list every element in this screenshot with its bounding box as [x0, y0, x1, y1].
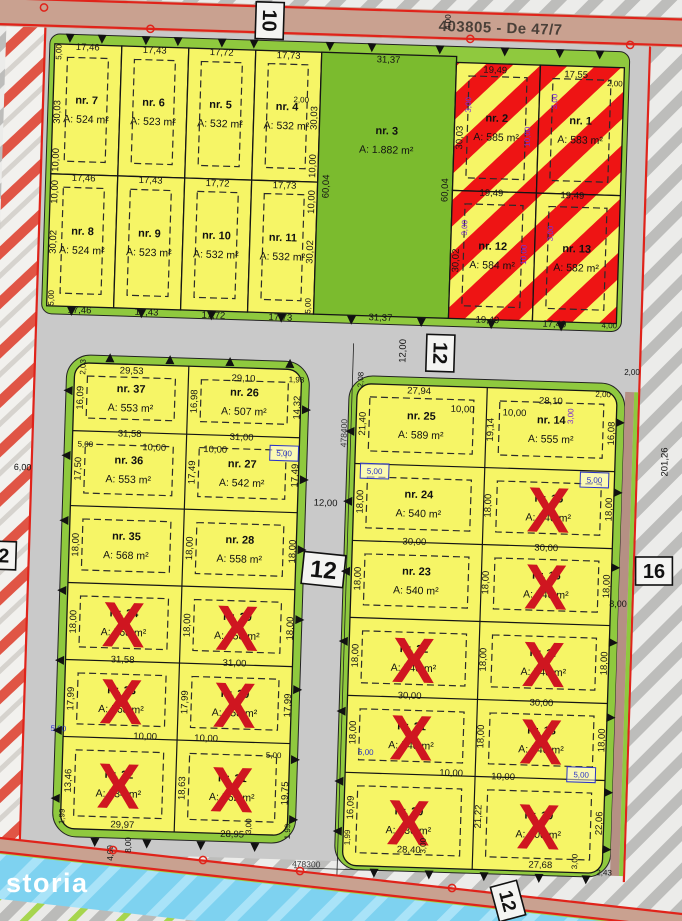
dim-label-group: 19,14	[485, 418, 497, 442]
plot-area-label: A: 532 m²	[263, 119, 309, 132]
plot-area-label: A: 507 m²	[221, 405, 267, 418]
dim-label-group: 19,49	[560, 190, 584, 202]
dim-label-group: 10,00	[142, 442, 166, 454]
dim-label-group: 8,00	[124, 837, 133, 853]
dim-label-group: 2,00	[293, 95, 309, 105]
dim-label: 5,00	[367, 467, 383, 477]
dim-label-group: 2,00	[624, 368, 640, 377]
dim-label-group: 18,00	[596, 728, 608, 752]
dim-label-group: 10,00	[306, 190, 318, 214]
dim-label: 10,00	[307, 154, 319, 178]
dim-label: 30,00	[398, 690, 422, 702]
dim-label-group: 18,00	[483, 494, 495, 518]
dim-label-group: 31,00	[222, 658, 246, 670]
dim-label: 10,00	[133, 731, 157, 743]
sold-x-mark: X	[210, 753, 255, 826]
plot-area-label: A: 532 m²	[193, 248, 239, 261]
dim-label-group: 14,32	[292, 396, 304, 420]
plot-number-label: nr. 9	[138, 228, 161, 241]
dim-label: 3,00	[244, 818, 254, 834]
plot-number-label: nr. 10	[202, 230, 231, 243]
dim-label-group: 10,00	[502, 407, 526, 419]
dim-label-group: 17,46	[72, 173, 96, 185]
dim-label: 17,99	[179, 690, 191, 714]
plot-number-label: nr. 28	[225, 534, 254, 547]
dim-label-group: 18,00	[478, 648, 490, 672]
dim-label-group: 21,40	[357, 412, 369, 436]
dim-label: 17,73	[272, 180, 296, 192]
dim-label-group: 17,73	[272, 180, 296, 192]
dim-label: 30,00	[402, 536, 426, 548]
sold-x-mark: X	[521, 628, 566, 701]
dim-label-group: 2,00	[595, 390, 611, 400]
dim-label: 17,55	[564, 69, 588, 81]
dim-label: 5,00	[54, 44, 64, 60]
dim-label: 22,06	[594, 811, 606, 835]
dim-label-group: 60,04	[320, 174, 332, 198]
dim-label-group: 27,94	[407, 385, 431, 397]
plot-number-label: nr. 6	[142, 97, 165, 110]
plot-number-label: nr. 23	[402, 566, 431, 579]
dim-label: 10,00	[50, 148, 62, 172]
dim-label: 18,00	[70, 533, 82, 557]
plot-area-label: A: 524 m²	[63, 113, 109, 126]
dim-label: 17,43	[143, 45, 167, 57]
dim-label: 18,00	[475, 725, 487, 749]
dim-label-group: 10,00	[523, 126, 533, 147]
dim-label-group: 12,00	[397, 339, 409, 363]
dim-label: 30,02	[48, 230, 60, 254]
dim-label: 12,00	[314, 498, 338, 510]
dim-label-group: 18,00	[347, 720, 359, 744]
dim-label-group: 10,00	[203, 444, 227, 456]
dim-label: 478300	[292, 859, 321, 870]
dim-label: 30,03	[52, 100, 64, 124]
dim-label-group: 1,99	[57, 808, 67, 824]
plot-area-label: A: 553 m²	[108, 402, 154, 415]
dim-label: 3,00	[460, 219, 470, 235]
dim-label: 5,00	[573, 770, 589, 780]
dim-label: 19,49	[483, 65, 507, 77]
dim-label: 18,00	[596, 728, 608, 752]
dim-label-group: 18,00	[182, 613, 194, 637]
dim-label: 31,37	[376, 54, 400, 66]
dim-label: 18,00	[182, 613, 194, 637]
dim-label: 201,26	[659, 447, 670, 476]
dim-label-group: 28,10	[539, 396, 563, 408]
dim-label: 18,63	[177, 776, 189, 800]
dim-label: 18,00	[599, 651, 611, 675]
dim-label: 5,00	[303, 297, 313, 313]
dim-label-group: 5,00	[303, 297, 313, 313]
dim-label-group: 18,63	[177, 776, 189, 800]
dim-label-group: 3,00	[460, 219, 470, 235]
dim-label: 3,00	[570, 853, 580, 869]
dim-label-group: 3,00	[464, 96, 474, 112]
dim-label-group: 21,22	[473, 804, 485, 828]
dim-label: 17,46	[76, 42, 100, 54]
dim-label: 17,43	[134, 307, 158, 319]
dim-label-group: 2,03	[78, 358, 88, 374]
dim-label: 18,00	[347, 720, 359, 744]
dim-label-group: 18,00	[285, 616, 297, 640]
cadastral-plan-drawing: 403805 - De 47/7nr. 7A: 524 m²nr. 6A: 52…	[0, 0, 682, 921]
dim-label-group: 30,02	[304, 240, 316, 264]
dim-label: 31,00	[230, 432, 254, 444]
dim-label: 10,00	[203, 444, 227, 456]
dim-label: 18,00	[603, 497, 615, 521]
dim-label: 16,09	[345, 795, 357, 819]
dim-label-group: 18,00	[68, 610, 80, 634]
dim-label: 21,40	[357, 412, 369, 436]
plot-area-label: A: 555 m²	[528, 433, 574, 446]
dim-label: 28,95	[220, 829, 244, 841]
dim-label-group: 17,43	[139, 175, 163, 187]
dim-label-group: 18,00	[475, 725, 487, 749]
plot-number-label: nr. 3	[375, 125, 398, 138]
dim-label: 27,94	[407, 385, 431, 397]
dim-label-group: 5,00	[270, 445, 299, 461]
dim-label-group: 30,00	[402, 536, 426, 548]
plot-area-label: A: 523 m²	[130, 115, 176, 128]
dim-label: 18,00	[285, 616, 297, 640]
plot-area-label: A: 1.882 m²	[359, 143, 414, 157]
dim-label-group: 28,95	[220, 829, 244, 841]
plot-nr-3	[314, 52, 457, 318]
dim-label: 18,00	[355, 490, 367, 514]
dim-label-group: 29,10	[231, 373, 255, 385]
dim-label-group: 31,58	[118, 428, 142, 440]
dim-label: 5,00	[77, 440, 93, 450]
dim-label-group: 30,00	[529, 697, 553, 709]
dim-label: 17,43	[139, 175, 163, 187]
dim-label-group: 17,55	[564, 69, 588, 81]
dim-label: 478400	[338, 419, 349, 448]
dim-label-group: 10,00	[519, 244, 529, 265]
dim-label: 29,10	[231, 373, 255, 385]
dim-label: 4,00	[443, 14, 453, 30]
dim-label-group: 201,26	[659, 447, 670, 476]
dim-label-group: 3,00	[570, 853, 580, 869]
dim-label-group: 17,49	[289, 464, 301, 488]
dim-label: 2,00	[624, 368, 640, 377]
sold-x-mark: X	[212, 669, 257, 742]
dim-label: 30,02	[304, 240, 316, 264]
dim-label-group: 16,98	[189, 389, 201, 413]
dim-label: 18,00	[184, 536, 196, 560]
dim-label-group: 10,00	[49, 180, 61, 204]
dim-label: 10,00	[194, 733, 218, 745]
dim-label-group: 2,43	[596, 868, 612, 878]
dim-label-group: 16,09	[345, 795, 357, 819]
storia-watermark: storia	[6, 868, 89, 899]
dim-label-group: 12,00	[314, 498, 338, 510]
dim-label: 27,68	[528, 859, 552, 871]
dim-label-group: 10,00	[307, 154, 319, 178]
dim-label-group: 13,46	[63, 769, 75, 793]
dim-label: 10,00	[49, 180, 61, 204]
dim-label: 31,37	[368, 312, 392, 324]
dim-label-group: 18,00	[603, 497, 615, 521]
dim-label-group: 19,49	[483, 65, 507, 77]
plot-number-label: nr. 2	[485, 112, 508, 125]
dim-label-group: 19,75	[279, 781, 291, 805]
road-number-label: 16	[643, 561, 665, 583]
plot-number-label: nr. 27	[228, 458, 257, 471]
plot-number-label: nr. 26	[230, 387, 259, 400]
dim-label: 1,98	[289, 375, 305, 385]
dim-label: 10,00	[502, 407, 526, 419]
dim-label-group: 30,03	[454, 126, 466, 150]
dim-label: 5,00	[46, 289, 56, 305]
dim-label-group: 31,58	[110, 654, 134, 666]
dim-label-group: 3,00	[550, 93, 560, 109]
dim-label: 18,00	[483, 494, 495, 518]
dim-label: 18,00	[601, 574, 613, 598]
dim-label-group: 30,00	[398, 690, 422, 702]
cadastral-plan-canvas: 403805 - De 47/7nr. 7A: 524 m²nr. 6A: 52…	[0, 0, 682, 921]
dim-label: 19,14	[485, 418, 497, 442]
dim-label: 2,00	[595, 390, 611, 400]
dim-label-group: 10,00	[50, 148, 62, 172]
plot-area-label: A: 542 m²	[219, 477, 265, 490]
dim-label: 10,00	[491, 771, 515, 783]
sold-x-mark: X	[516, 790, 561, 863]
dim-label: 17,99	[282, 693, 294, 717]
dim-label-group: 30,00	[534, 542, 558, 554]
plot-nr-9	[114, 176, 185, 310]
dim-label: 19,49	[560, 190, 584, 202]
dim-label-group: 6,00	[14, 462, 32, 473]
dim-label-group: 478300	[292, 859, 321, 870]
dim-label: 17,73	[277, 50, 301, 62]
dim-label-group: 31,37	[368, 312, 392, 324]
dim-label-group: 5,00	[54, 44, 64, 60]
dim-label: 60,04	[439, 178, 451, 202]
sold-x-mark: X	[524, 550, 569, 623]
plot-area-label: A: 540 m²	[393, 584, 439, 597]
dim-label: 30,00	[529, 697, 553, 709]
dim-label: 10,00	[523, 126, 533, 147]
dim-label-group: 30,02	[450, 248, 462, 272]
dim-label: 2,00	[293, 95, 309, 105]
plot-number-label: nr. 5	[209, 99, 232, 112]
dim-label-group: 30,03	[52, 100, 64, 124]
plot-number-label: nr. 11	[269, 232, 298, 245]
dim-label: 10,00	[519, 244, 529, 265]
dim-label: 10,00	[142, 442, 166, 454]
dim-label-group: 4,00	[601, 321, 617, 331]
dim-label-group: 18,00	[350, 644, 362, 668]
sold-x-mark: X	[519, 705, 564, 778]
dim-label: 17,72	[206, 178, 230, 190]
dim-label-group: 8,00	[609, 599, 627, 609]
dim-label: 17,49	[186, 460, 198, 484]
plot-number-label: nr. 24	[404, 489, 434, 502]
dim-label: 4,00	[601, 321, 617, 331]
dim-label-group: 478400	[338, 419, 349, 448]
dim-label: 3,00	[546, 225, 556, 241]
plot-area-label: A: 524 m²	[59, 244, 105, 257]
dim-label: 28,10	[539, 396, 563, 408]
dim-label: 30,00	[534, 542, 558, 554]
dim-label-group: 29,97	[110, 819, 134, 831]
dim-label-group: 5,00	[266, 751, 282, 761]
dim-label: 30,03	[309, 106, 321, 130]
plot-number-label: nr. 25	[407, 410, 436, 423]
road-number-label: 10	[257, 9, 280, 32]
road-number-box: 12	[426, 334, 455, 372]
road-number-box: 16	[636, 557, 673, 585]
sold-x-mark: X	[96, 750, 141, 823]
dim-label: 18,00	[352, 567, 364, 591]
dim-label: 60,04	[320, 174, 332, 198]
dim-label: 31,58	[118, 428, 142, 440]
dim-label-group: 17,72	[210, 47, 234, 59]
dim-label: 1,99	[283, 823, 293, 839]
dim-label-group: 18,00	[355, 490, 367, 514]
dim-label: 2,08	[356, 371, 366, 387]
dim-label-group: 18,00	[184, 536, 196, 560]
dim-label-group: 10,00	[439, 768, 463, 780]
dim-label-group: 5,00	[580, 472, 609, 488]
dim-label: 16,09	[75, 386, 87, 410]
road-number-box: 10	[255, 2, 284, 40]
dim-label: 6,00	[14, 462, 32, 473]
sold-x-mark: X	[526, 473, 571, 546]
dim-label-group: 18,00	[480, 571, 492, 595]
dim-label-group: 1,99	[283, 823, 293, 839]
plot-area-label: A: 582 m²	[553, 262, 599, 275]
dim-label-group: 17,73	[277, 50, 301, 62]
road-number-label: 2	[0, 545, 10, 567]
dim-label-group: 18,00	[352, 567, 364, 591]
dim-label: 3,00	[550, 93, 560, 109]
dim-label: 28,40	[397, 844, 421, 856]
dim-label: 5,00	[266, 751, 282, 761]
plot-area-label: A: 558 m²	[216, 553, 262, 566]
dim-label-group: 17,46	[76, 42, 100, 54]
dim-label: 10,00	[439, 768, 463, 780]
road-number-label: 12	[428, 342, 451, 365]
dim-label-group: 18,00	[599, 651, 611, 675]
dim-label: 14,32	[292, 396, 304, 420]
plot-area-label: A: 532 m²	[259, 250, 305, 263]
plot-number-label: nr. 12	[478, 240, 507, 253]
dim-label-group: 2,00	[607, 79, 623, 89]
plot-area-label: A: 532 m²	[197, 117, 243, 130]
dim-label-group: 28,40	[397, 844, 421, 856]
sold-x-mark: X	[389, 701, 434, 774]
dim-label: 18,00	[350, 644, 362, 668]
dim-label: 30,03	[454, 126, 466, 150]
dim-label: 2,03	[78, 358, 88, 374]
dim-label-group: 19,49	[479, 188, 503, 200]
dim-label: 12,00	[397, 339, 409, 363]
plot-nr-6	[118, 46, 189, 178]
plot-area-label: A: 568 m²	[103, 549, 149, 562]
dim-label-group: 2,08	[356, 371, 366, 387]
dim-label: 13,46	[63, 769, 75, 793]
dim-label: 16,98	[189, 389, 201, 413]
dim-label: 18,00	[480, 571, 492, 595]
plan-group: 403805 - De 47/7nr. 7A: 524 m²nr. 6A: 52…	[0, 0, 682, 892]
dim-label-group: 18,00	[70, 533, 82, 557]
dim-label-group: 29,53	[120, 365, 144, 377]
plot-number-label: nr. 37	[117, 383, 146, 396]
dim-label: 2,00	[607, 79, 623, 89]
dim-label: 29,53	[120, 365, 144, 377]
dim-label: 17,99	[65, 687, 77, 711]
road-number-box: 2	[0, 541, 16, 570]
dim-label-group: 1,99	[343, 829, 353, 845]
dim-label: 8,00	[609, 599, 627, 609]
dim-label: 5,00	[276, 449, 292, 459]
dim-label-group: 17,50	[72, 457, 84, 481]
plot-number-label: nr. 14	[537, 414, 567, 427]
dim-label-group: 3,00	[546, 225, 556, 241]
dim-label-group: 5,00	[358, 748, 374, 758]
dim-label: 17,72	[210, 47, 234, 59]
road-number-box: 12	[301, 552, 346, 588]
dim-label: 8,00	[124, 837, 133, 853]
sold-x-mark: X	[99, 665, 144, 738]
plot-number-label: nr. 35	[112, 530, 141, 543]
dim-label-group: 18,00	[601, 574, 613, 598]
dim-label: 17,50	[72, 457, 84, 481]
dim-label: 10,00	[306, 190, 318, 214]
dim-label-group: 10,00	[133, 731, 157, 743]
dim-label: 1,99	[343, 829, 353, 845]
plot-nr-5	[185, 48, 256, 180]
plot-area-label: A: 553 m²	[105, 473, 151, 486]
dim-label: 5,00	[587, 476, 603, 486]
road-number-label: 12	[309, 556, 338, 586]
plot-number-label: nr. 36	[114, 454, 143, 467]
dim-label: 18,00	[287, 540, 299, 564]
dim-label: 18,00	[68, 610, 80, 634]
sold-x-mark: X	[101, 588, 146, 661]
dim-label: 3,00	[464, 96, 474, 112]
plot-area-label: A: 585 m²	[473, 131, 519, 144]
dim-label-group: 5,00	[567, 767, 596, 783]
plot-number-label: nr. 8	[71, 225, 94, 238]
plot-area-label: A: 584 m²	[469, 259, 515, 272]
dim-label-group: 30,02	[48, 230, 60, 254]
dim-label-group: 30,03	[309, 106, 321, 130]
dim-label-group: 31,00	[230, 432, 254, 444]
dim-label-group: 5,00	[77, 440, 93, 450]
dim-label-group: 10,00	[451, 404, 475, 416]
dim-label-group: 1,98	[289, 375, 305, 385]
plot-nr-10	[181, 178, 252, 312]
dim-label-group: 3,00	[566, 408, 576, 424]
dim-label-group: 10,00	[491, 771, 515, 783]
dim-label: 17,46	[72, 173, 96, 185]
dim-label-group: 22,06	[594, 811, 606, 835]
dim-label-group: 17,49	[186, 460, 198, 484]
plot-number-label: nr. 13	[562, 243, 591, 256]
dim-label-group: 10,00	[194, 733, 218, 745]
plot-area-label: A: 583 m²	[557, 134, 603, 147]
dim-label-group: 5,00	[46, 289, 56, 305]
plot-area-label: A: 540 m²	[395, 507, 441, 520]
dim-label: 3,00	[418, 837, 428, 853]
dim-label: 30,02	[450, 248, 462, 272]
plot-area-label: A: 523 m²	[126, 246, 172, 259]
dim-label-group: 17,99	[65, 687, 77, 711]
dim-label: 17,49	[289, 464, 301, 488]
